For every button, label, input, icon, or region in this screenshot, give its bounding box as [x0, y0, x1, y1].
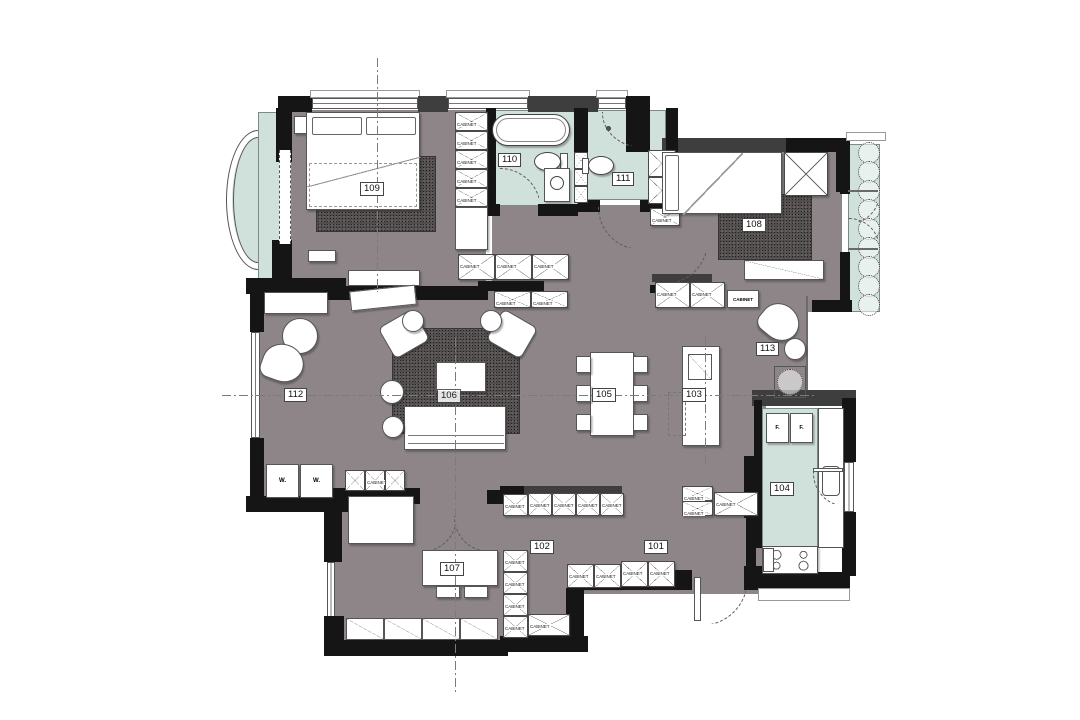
cabinet: CABINET — [503, 572, 528, 594]
cabinet: CABINET — [455, 112, 488, 131]
dining-chair — [576, 356, 591, 373]
pillow — [366, 117, 416, 135]
cabinet: CABINET — [528, 614, 570, 636]
sofa-seat-line — [408, 435, 504, 436]
balcony-door-leaf — [848, 248, 878, 250]
wall — [330, 640, 508, 656]
stool — [480, 310, 502, 332]
cabinet: CABINET — [727, 290, 759, 308]
wall — [754, 572, 850, 588]
bed-bench — [308, 250, 336, 262]
basin — [550, 176, 564, 190]
window — [598, 98, 626, 109]
room-label-102: 102 — [530, 540, 554, 554]
window — [327, 562, 335, 618]
wall — [574, 108, 588, 152]
wall — [840, 152, 850, 194]
sofa-back-line — [408, 443, 504, 444]
wall — [486, 204, 500, 216]
wall — [662, 138, 786, 152]
dining-chair — [576, 385, 591, 402]
centerline-horizontal — [222, 395, 814, 396]
bath-cabinet — [574, 186, 588, 203]
dresser — [348, 270, 420, 286]
door-arc-bath-111 — [598, 206, 640, 248]
cabinet: CABINET — [458, 254, 495, 280]
storage-box — [348, 496, 414, 544]
wall — [754, 400, 762, 548]
toilet — [588, 156, 614, 175]
room-label-101: 101 — [644, 540, 668, 554]
balcony-door — [279, 150, 291, 244]
cabinet: CABINET — [503, 616, 528, 638]
cabinet: CABINET — [495, 254, 532, 280]
wall — [324, 510, 342, 562]
cabinet: CABINET — [552, 493, 576, 516]
building-edge-line — [806, 296, 808, 400]
cabinet: CABINET — [690, 282, 725, 308]
wardrobe-box — [784, 152, 828, 196]
window-sill — [846, 132, 886, 141]
wall — [538, 204, 578, 216]
window-sill — [758, 588, 850, 601]
coffee-table — [436, 362, 486, 392]
wall — [478, 281, 544, 291]
room-label-107: 107 — [440, 562, 464, 576]
ottoman — [784, 338, 806, 360]
door-arc-bedroom-108 — [664, 240, 706, 282]
plant — [777, 369, 803, 395]
dining-chair — [633, 356, 648, 373]
cabinet: CABINET — [621, 561, 648, 587]
cabinet: CABINET — [714, 492, 758, 516]
wall — [666, 108, 678, 152]
cabinet: CABINET — [532, 254, 569, 280]
cabinet-counter — [455, 207, 488, 250]
cabinet: CABINET — [531, 291, 568, 308]
wall — [842, 398, 856, 462]
room-label-113: 113 — [756, 342, 779, 356]
cabinet: CABINET — [503, 550, 528, 572]
headboard — [665, 155, 679, 211]
cabinet: CABINET — [455, 169, 488, 188]
window-sill — [310, 90, 420, 98]
wall — [250, 292, 264, 332]
cabinet: CABINET — [494, 291, 531, 308]
cabinet: CABINET — [655, 282, 690, 308]
pillow — [312, 117, 362, 135]
cabinet: CABINET — [600, 493, 624, 516]
window-sill — [596, 90, 628, 98]
room-label-110: 110 — [498, 153, 521, 167]
cabinet: CABINET — [455, 150, 488, 169]
fridge: F. — [790, 413, 813, 443]
room-label-109: 109 — [360, 182, 384, 196]
door-arc-107-right — [454, 516, 488, 550]
cabinet: CABINET — [455, 131, 488, 150]
bathtub — [492, 114, 570, 146]
cabinet: CABINET — [455, 188, 488, 207]
floor-plan: CABINET CABINET CABINET CABINET CABINET … — [0, 0, 1080, 720]
washer-box: W. — [266, 464, 299, 498]
sideboard — [264, 292, 328, 314]
cabinet: CABINET — [594, 564, 621, 588]
room-label-103: 103 — [682, 388, 706, 402]
side-table — [382, 416, 404, 438]
wall — [842, 512, 856, 576]
window — [844, 462, 854, 512]
fridge: F. — [766, 413, 789, 443]
centerline-vertical-left — [377, 58, 378, 292]
cabinet: CABINET — [503, 494, 528, 516]
cabinet: CABINET — [648, 561, 675, 587]
window-bench — [460, 618, 498, 640]
room-label-105: 105 — [592, 388, 616, 402]
cabinet — [385, 470, 405, 491]
cabinet: CABINET — [682, 486, 713, 501]
dining-chair — [633, 414, 648, 431]
window-bench — [384, 618, 422, 640]
sink-small — [763, 548, 774, 572]
wall — [812, 300, 852, 312]
dining-chair — [633, 385, 648, 402]
shower-door-arc — [602, 112, 642, 146]
blanket-fold — [683, 153, 743, 215]
desk — [744, 260, 824, 280]
room-label-112: 112 — [284, 388, 307, 402]
dining-chair — [576, 414, 591, 431]
cabinet: CABINET — [365, 470, 385, 491]
plant — [858, 294, 880, 316]
bed-single — [662, 152, 782, 214]
window-bench — [346, 618, 384, 640]
window — [251, 332, 260, 438]
room-label-108: 108 — [742, 218, 766, 232]
room-label-106: 106 — [437, 389, 461, 403]
door-arc-balcony-lower — [848, 218, 878, 248]
chair — [464, 586, 488, 598]
door-arc-107-left — [421, 516, 455, 550]
room-label-104: 104 — [770, 482, 794, 496]
chair — [436, 586, 460, 598]
island-cooktop — [688, 354, 712, 380]
cabinet: CABINET — [567, 564, 594, 588]
cabinet: CABINET — [528, 493, 552, 516]
cabinet: CABINET — [576, 493, 600, 516]
door-arc-entry-101 — [700, 578, 746, 624]
window — [312, 98, 418, 109]
door-arc-kitchen-104 — [813, 472, 843, 504]
cabinet: CABINET — [503, 594, 528, 616]
side-table — [380, 380, 404, 404]
window-sill — [446, 90, 530, 98]
washer-box: W. — [300, 464, 333, 498]
wall — [418, 96, 448, 112]
cabinet: CABINET — [682, 501, 713, 516]
stool — [402, 310, 424, 332]
room-label-111: 111 — [612, 172, 634, 186]
cabinet — [345, 470, 365, 491]
door-arc-bath-110 — [499, 168, 539, 208]
